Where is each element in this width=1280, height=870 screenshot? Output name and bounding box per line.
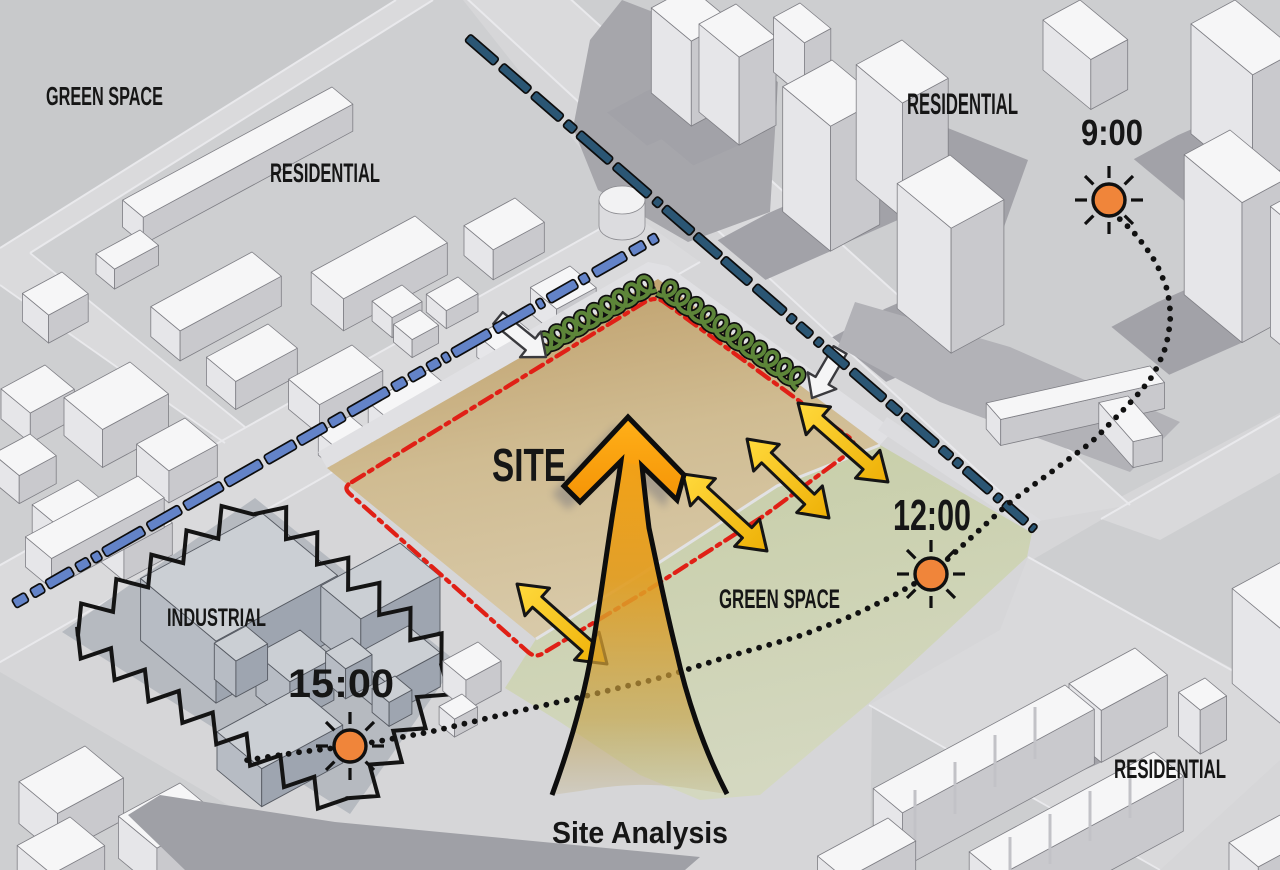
svg-text:12:00: 12:00 [893, 491, 971, 540]
svg-text:RESIDENTIAL: RESIDENTIAL [1114, 754, 1226, 784]
svg-text:Site Analysis: Site Analysis [552, 815, 728, 850]
svg-text:INDUSTRIAL: INDUSTRIAL [167, 604, 266, 632]
svg-text:15:00: 15:00 [288, 662, 394, 706]
svg-text:GREEN SPACE: GREEN SPACE [46, 81, 163, 111]
svg-text:RESIDENTIAL: RESIDENTIAL [907, 88, 1018, 121]
svg-text:SITE: SITE [492, 439, 566, 491]
svg-text:RESIDENTIAL: RESIDENTIAL [270, 158, 380, 188]
svg-text:GREEN SPACE: GREEN SPACE [719, 584, 840, 614]
svg-text:9:00: 9:00 [1081, 112, 1143, 153]
